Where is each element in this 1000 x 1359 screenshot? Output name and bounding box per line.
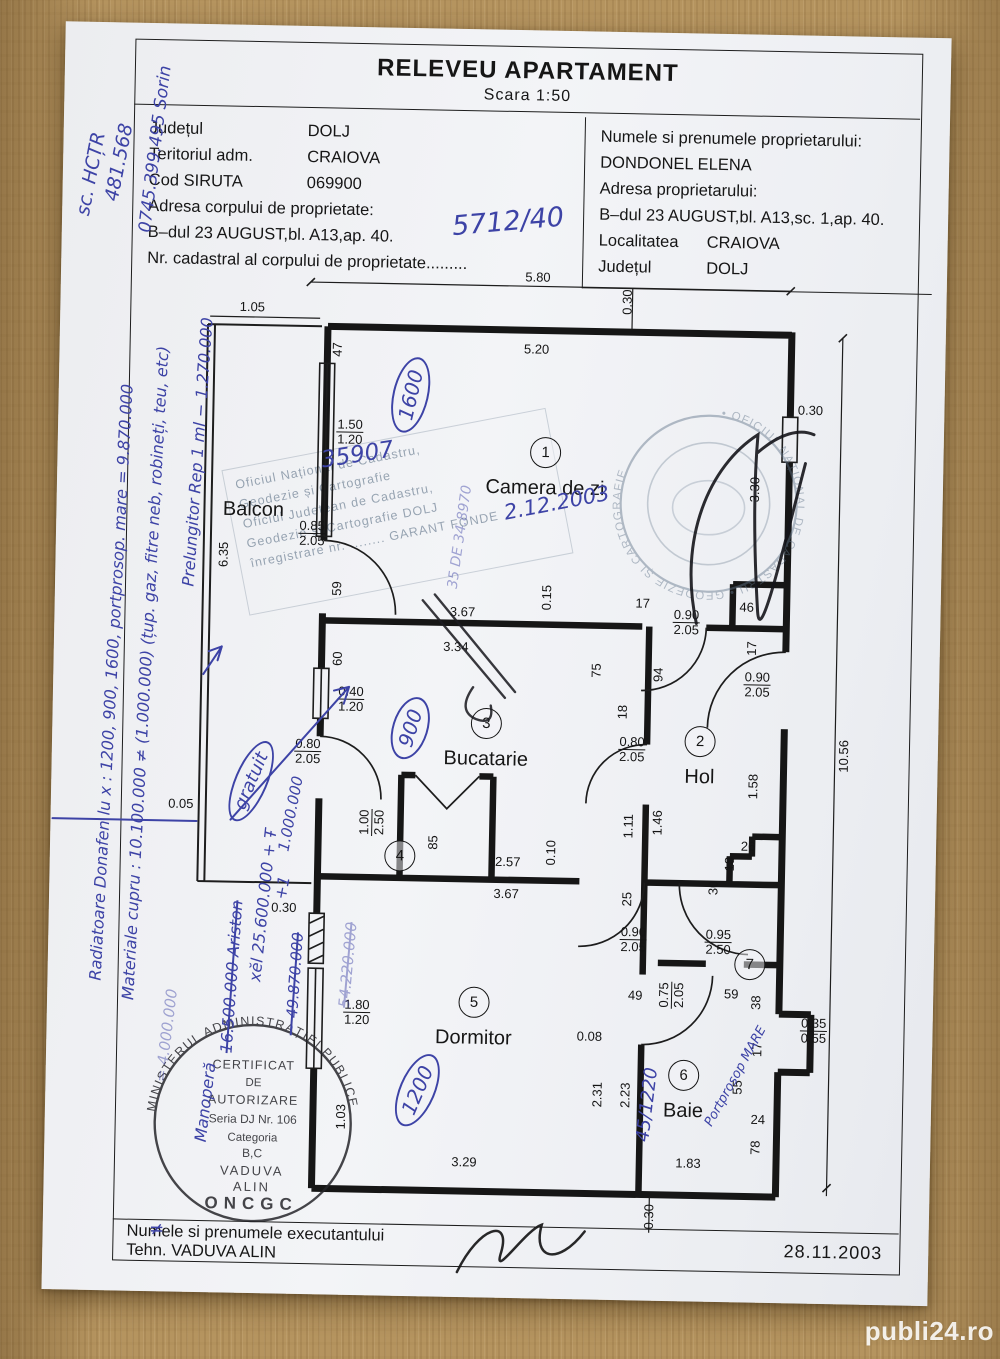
dim-label: 2.57 bbox=[495, 855, 521, 869]
dim-label: 3.34 bbox=[443, 640, 469, 654]
dim-label: 3.29 bbox=[451, 1155, 477, 1169]
dim-label: 0.30 bbox=[271, 901, 297, 915]
dim-label: 0.902.05 bbox=[619, 925, 647, 954]
dim-label: 2.23 bbox=[618, 1082, 632, 1108]
site-watermark: publi24.ro bbox=[865, 1316, 994, 1347]
room-number: 1 bbox=[530, 437, 562, 469]
dim-label: 26 bbox=[741, 840, 756, 854]
dim-label: 5.80 bbox=[525, 270, 551, 284]
room-label: Balcon bbox=[223, 498, 285, 522]
room-number: 5 bbox=[458, 987, 490, 1019]
document-date: 28.11.2003 bbox=[783, 1241, 882, 1264]
dim-label: 2.31 bbox=[590, 1082, 604, 1108]
dim-label: 47 bbox=[331, 342, 345, 357]
dim-label: 59 bbox=[330, 581, 344, 596]
dim-label: 0.952.50 bbox=[704, 928, 732, 957]
dim-label: 24 bbox=[750, 1113, 765, 1127]
dim-label: 0.10 bbox=[544, 840, 558, 866]
executant-block: Numele si prenumele executantului Tehn. … bbox=[126, 1222, 384, 1265]
dim-label: 0.852.05 bbox=[298, 519, 326, 548]
dim-label: 1.501.20 bbox=[336, 417, 364, 446]
dim-label: 0.752.05 bbox=[657, 981, 686, 1009]
dim-label: 1.05 bbox=[240, 300, 266, 314]
dim-label: 46 bbox=[739, 601, 754, 615]
room-label: Dormitor bbox=[435, 1026, 512, 1050]
dim-label: 55 bbox=[731, 1080, 745, 1095]
dim-label: 3.30 bbox=[748, 477, 762, 503]
floor-plan: 5.800.301.05475.200.301.501.203.300.852.… bbox=[183, 266, 901, 1239]
dim-label: 38 bbox=[749, 995, 763, 1010]
dim-label: 0.902.05 bbox=[672, 608, 700, 637]
dim-label: 49 bbox=[628, 988, 643, 1002]
dim-label: 1.03 bbox=[334, 1104, 348, 1130]
dim-label: 0.05 bbox=[168, 797, 194, 811]
dim-label: 25 bbox=[620, 892, 634, 907]
scanned-document-paper: RELEVEU APARTAMENT Scara 1:50 JudețulDOL… bbox=[41, 21, 951, 1306]
dim-label: 3.67 bbox=[450, 605, 476, 619]
dim-label: 78 bbox=[748, 1140, 762, 1155]
dim-label: 1.801.20 bbox=[343, 998, 371, 1027]
room-number: 6 bbox=[668, 1060, 700, 1092]
dim-label: 0.350.55 bbox=[800, 1016, 828, 1045]
dim-label: 85 bbox=[426, 835, 440, 850]
dim-label: 0.30 bbox=[798, 404, 824, 418]
handwritten-note: sc. HCȚR bbox=[72, 130, 110, 217]
room-number: 4 bbox=[384, 840, 416, 872]
dim-label: 1.002.50 bbox=[357, 808, 386, 836]
room-label: Camera de zi bbox=[485, 476, 604, 501]
room-label: Baie bbox=[663, 1099, 703, 1123]
dim-label: 1.83 bbox=[675, 1156, 701, 1170]
dim-label: 0.802.05 bbox=[294, 737, 322, 766]
owner-info-block: Numele si prenumele proprietarului: DOND… bbox=[582, 117, 935, 295]
room-label: Hol bbox=[684, 766, 714, 790]
dim-label: 0.30 bbox=[620, 289, 634, 315]
dim-label: 17 bbox=[745, 641, 759, 656]
dim-label: 0.15 bbox=[540, 585, 554, 611]
property-info-block: JudețulDOLJ Teritoriul adm.CRAIOVA Cod S… bbox=[147, 115, 580, 279]
room-number: 7 bbox=[734, 949, 766, 981]
dim-label: 18 bbox=[723, 857, 737, 872]
dim-label: 3.67 bbox=[493, 887, 519, 901]
dim-label: 18 bbox=[616, 705, 630, 720]
dim-label: 17 bbox=[635, 597, 650, 611]
dim-label: 6.35 bbox=[217, 542, 231, 568]
photo-of-scanned-floor-plan: { "watermark": "publi24.ro", "colors": {… bbox=[0, 0, 1000, 1359]
dim-label: 5.20 bbox=[524, 342, 550, 356]
dim-label: 10.56 bbox=[837, 740, 851, 773]
dim-label: 1.11 bbox=[621, 814, 635, 839]
dim-label: 30 bbox=[706, 881, 720, 896]
dim-label: 0.802.05 bbox=[618, 735, 646, 764]
dim-label: 59 bbox=[724, 987, 739, 1001]
dim-label: 17 bbox=[750, 1042, 764, 1057]
room-number: 3 bbox=[471, 708, 503, 740]
room-number: 2 bbox=[684, 726, 716, 758]
dim-label: 0.30 bbox=[642, 1204, 656, 1230]
dim-label: 1.58 bbox=[746, 774, 760, 800]
dim-label: 0.902.05 bbox=[743, 670, 771, 699]
dim-label: 75 bbox=[589, 663, 603, 678]
dim-label: 1.46 bbox=[650, 810, 664, 836]
room-label: Bucatarie bbox=[443, 747, 528, 772]
dim-label: 0.401.20 bbox=[337, 684, 365, 713]
dim-label: 94 bbox=[651, 667, 665, 682]
dim-label: 60 bbox=[331, 651, 345, 666]
dim-label: 0.08 bbox=[577, 1029, 603, 1043]
plan-labels: 5.800.301.05475.200.301.501.203.300.852.… bbox=[183, 266, 901, 1239]
